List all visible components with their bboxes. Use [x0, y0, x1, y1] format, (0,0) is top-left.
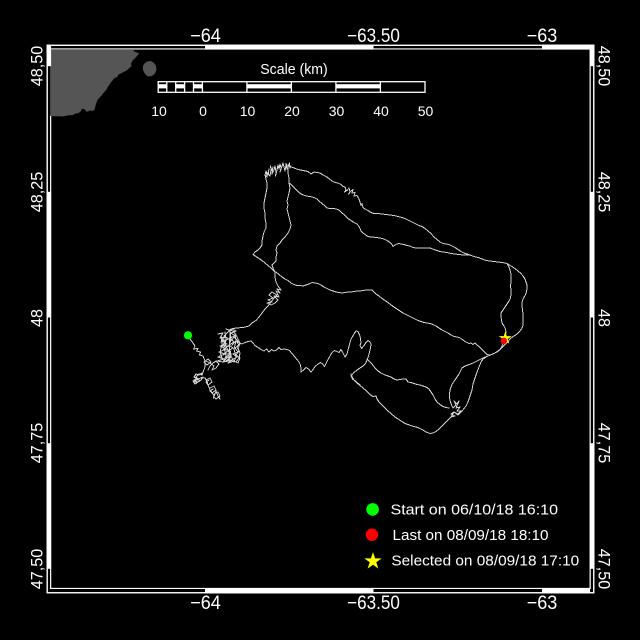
- svg-text:Selected on 08/09/18 17:10: Selected on 08/09/18 17:10: [391, 553, 579, 570]
- svg-text:48,25: 48,25: [27, 172, 46, 213]
- svg-text:47,75: 47,75: [594, 423, 613, 464]
- svg-text:−63: −63: [527, 593, 558, 614]
- svg-text:50: 50: [418, 103, 434, 119]
- svg-text:48,50: 48,50: [594, 46, 613, 87]
- svg-text:48: 48: [594, 309, 613, 327]
- svg-text:0: 0: [199, 103, 207, 119]
- svg-text:−63.50: −63.50: [347, 26, 400, 47]
- svg-text:10: 10: [151, 103, 167, 119]
- svg-text:20: 20: [284, 103, 300, 119]
- svg-text:47,50: 47,50: [27, 549, 46, 590]
- svg-text:Scale (km): Scale (km): [260, 61, 328, 78]
- svg-text:−63.50: −63.50: [347, 593, 400, 614]
- svg-text:48,25: 48,25: [594, 172, 613, 213]
- svg-text:47,75: 47,75: [27, 423, 46, 464]
- svg-text:30: 30: [329, 103, 345, 119]
- svg-text:Last on 08/09/18 18:10: Last on 08/09/18 18:10: [393, 527, 549, 544]
- svg-text:40: 40: [373, 103, 389, 119]
- svg-text:−63: −63: [527, 26, 558, 47]
- svg-text:48,50: 48,50: [27, 46, 46, 86]
- svg-text:−64: −64: [190, 26, 221, 47]
- svg-text:Start on 06/10/18 16:10: Start on 06/10/18 16:10: [391, 502, 559, 519]
- svg-text:47,50: 47,50: [594, 549, 613, 590]
- svg-text:−64: −64: [190, 593, 221, 614]
- svg-text:10: 10: [240, 103, 256, 119]
- svg-text:48: 48: [27, 309, 46, 327]
